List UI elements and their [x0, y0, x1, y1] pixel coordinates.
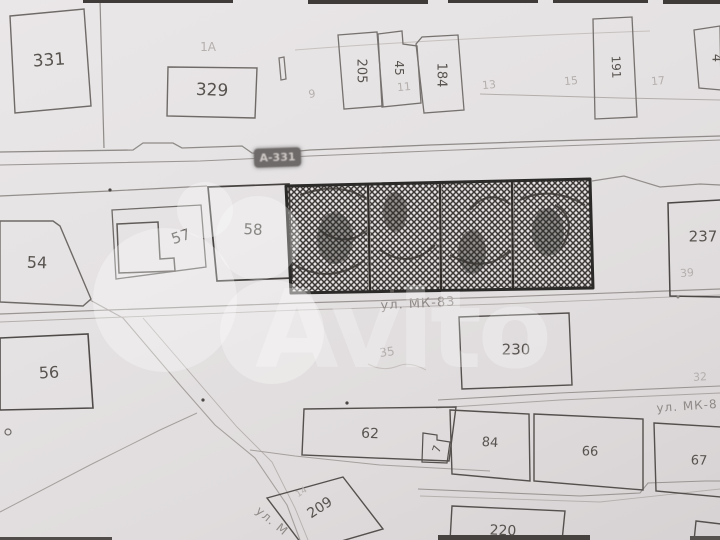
parcel-label-4-partial: 4: [710, 54, 720, 62]
parcel-label-191: 191: [610, 55, 623, 78]
parcel-label-220: 220: [489, 524, 516, 539]
watermark-circle: [177, 182, 233, 238]
parcel-label-67: 67: [691, 454, 708, 468]
parcel-label-62: 62: [361, 427, 379, 442]
road-a331-lines: [0, 136, 720, 165]
map-number-15: 15: [564, 75, 579, 87]
scan-edge-top: [308, 0, 428, 4]
parcel-label-237: 237: [689, 230, 718, 245]
map-number-11: 11: [397, 81, 412, 93]
scan-edge-top: [553, 0, 648, 3]
cadastral-map-photo: А-331 ул. МК-83 ул. МК-8 ул. М 331 329 2…: [0, 0, 720, 540]
parcel-label-56: 56: [38, 364, 59, 381]
parcel-label-54: 54: [27, 255, 48, 272]
map-number-9: 9: [308, 88, 316, 100]
map-number-17: 17: [651, 75, 666, 87]
scan-edge-bottom: [690, 536, 720, 540]
parcel-label-84: 84: [481, 436, 498, 450]
map-number-32: 32: [693, 371, 708, 383]
parcel-label-45: 45: [393, 60, 405, 75]
parcel-label-205: 205: [355, 59, 368, 84]
watermark-circle: [93, 228, 237, 372]
parcel-label-329: 329: [195, 82, 228, 100]
watermark-text: Avito: [255, 268, 548, 393]
scan-edge-top: [83, 0, 233, 3]
road-badge-a331: А-331: [254, 147, 302, 168]
parcel-label-66: 66: [582, 445, 599, 459]
map-number-1a: 1А: [200, 41, 216, 53]
parcel-label-331: 331: [32, 51, 66, 70]
map-number-13: 13: [482, 79, 497, 91]
map-number-39: 39: [680, 267, 695, 279]
scan-edge-top: [448, 0, 538, 3]
parcel-label-184: 184: [435, 63, 448, 88]
scan-edge-top: [663, 0, 720, 4]
